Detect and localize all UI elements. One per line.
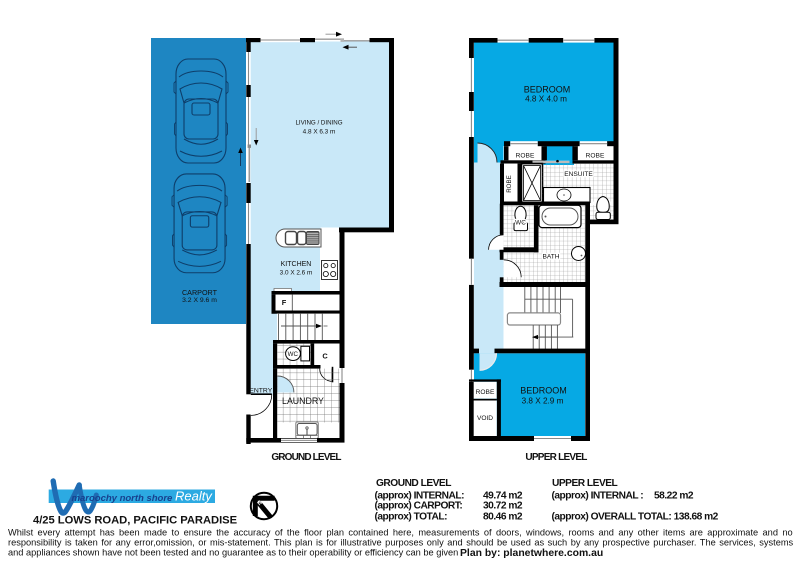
svg-text:UPPER LEVEL: UPPER LEVEL <box>525 452 587 463</box>
svg-text:ROBE: ROBE <box>586 153 605 160</box>
svg-text:3.0 X 2.6 m: 3.0 X 2.6 m <box>280 269 313 276</box>
svg-text:F: F <box>282 298 287 307</box>
svg-text:ENSUITE: ENSUITE <box>564 171 593 178</box>
svg-text:WC: WC <box>288 351 299 358</box>
svg-text:BEDROOM: BEDROOM <box>524 84 571 94</box>
svg-text:WC: WC <box>515 220 526 227</box>
svg-text:Realty: Realty <box>175 489 213 504</box>
svg-text:(approx) CARPORT:: (approx) CARPORT: <box>375 501 463 512</box>
svg-text:GROUND LEVEL: GROUND LEVEL <box>376 478 451 489</box>
svg-text:C: C <box>322 352 328 361</box>
svg-text:ROBE: ROBE <box>516 153 535 160</box>
svg-text:maroochy north shore: maroochy north shore <box>72 493 174 504</box>
svg-text:LIVING / DINING: LIVING / DINING <box>295 120 342 127</box>
svg-text:LAUNDRY: LAUNDRY <box>282 396 324 406</box>
svg-text:80.46 m2: 80.46 m2 <box>483 511 523 522</box>
svg-text:Whilst every attempt has been: Whilst every attempt has been made to en… <box>8 528 793 538</box>
svg-text:Plan by: planetwhere.com.au: Plan by: planetwhere.com.au <box>460 548 603 559</box>
svg-text:58.22 m2: 58.22 m2 <box>654 490 694 501</box>
svg-text:(approx) INTERNAL :: (approx) INTERNAL : <box>552 490 644 501</box>
svg-text:BEDROOM: BEDROOM <box>520 386 567 396</box>
svg-text:UPPER LEVEL: UPPER LEVEL <box>552 478 618 489</box>
svg-text:4/25 LOWS ROAD, PACIFIC PARADI: 4/25 LOWS ROAD, PACIFIC PARADISE <box>33 515 238 527</box>
svg-text:ROBE: ROBE <box>506 175 513 193</box>
svg-text:CARPORT: CARPORT <box>182 288 218 297</box>
svg-text:ROBE: ROBE <box>476 389 495 396</box>
svg-text:GROUND LEVEL: GROUND LEVEL <box>271 452 341 463</box>
svg-text:ENTRY: ENTRY <box>249 388 272 395</box>
svg-text:(approx) TOTAL:: (approx) TOTAL: <box>375 511 448 522</box>
svg-text:KITCHEN: KITCHEN <box>281 261 312 268</box>
svg-text:30.72 m2: 30.72 m2 <box>483 501 523 512</box>
svg-text:BATH: BATH <box>542 254 559 261</box>
svg-text:VOID: VOID <box>477 415 493 422</box>
svg-text:and appliances shown have not: and appliances shown have not been teste… <box>8 548 458 558</box>
svg-text:4.8 X 6.3 m: 4.8 X 6.3 m <box>303 129 336 136</box>
svg-text:(approx) OVERALL TOTAL: 138.6: (approx) OVERALL TOTAL: 138.68 m2 <box>552 511 719 522</box>
svg-text:3.8 X 2.9 m: 3.8 X 2.9 m <box>522 396 564 405</box>
svg-text:3.2 X 9.6 m: 3.2 X 9.6 m <box>182 297 217 304</box>
svg-text:4.8 X 4.0 m: 4.8 X 4.0 m <box>525 95 567 104</box>
svg-text:responsibility is taken for an: responsibility is taken for any error,om… <box>8 538 794 548</box>
